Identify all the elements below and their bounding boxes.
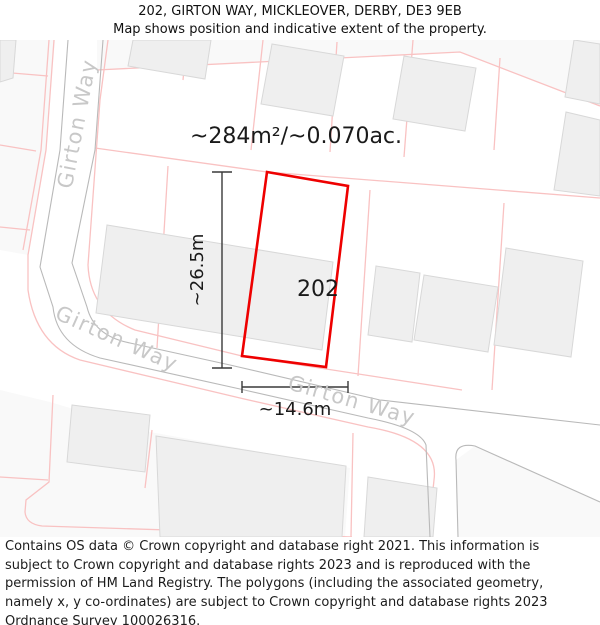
building [156,436,346,537]
building [393,56,476,131]
page-header: 202, GIRTON WAY, MICKLEOVER, DERBY, DE3 … [0,3,600,39]
height-measure-label: ~26.5m [187,234,208,307]
building [554,112,600,196]
building [128,40,211,79]
parcel-line [494,58,500,150]
parcel-tint-southeast [456,446,600,537]
page-title: 202, GIRTON WAY, MICKLEOVER, DERBY, DE3 … [0,3,600,21]
plot-number-label: 202 [297,277,339,302]
area-label: ~284m²/~0.070ac. [190,124,402,149]
copyright-notice: Contains OS data © Crown copyright and d… [5,538,583,625]
building [0,40,16,82]
parcel-line [358,190,370,376]
parcel-line [351,433,353,537]
building [261,44,344,116]
road-name-vertical: Girton Way [53,57,102,191]
building [364,477,437,537]
building [368,266,420,342]
property-map: ~284m²/~0.070ac. 202 ~26.5m ~14.6m Girto… [0,40,600,537]
building [414,275,498,352]
building [67,405,150,472]
building [494,248,583,357]
property-map-page: 202, GIRTON WAY, MICKLEOVER, DERBY, DE3 … [0,0,600,625]
page-subtitle: Map shows position and indicative extent… [0,21,600,39]
